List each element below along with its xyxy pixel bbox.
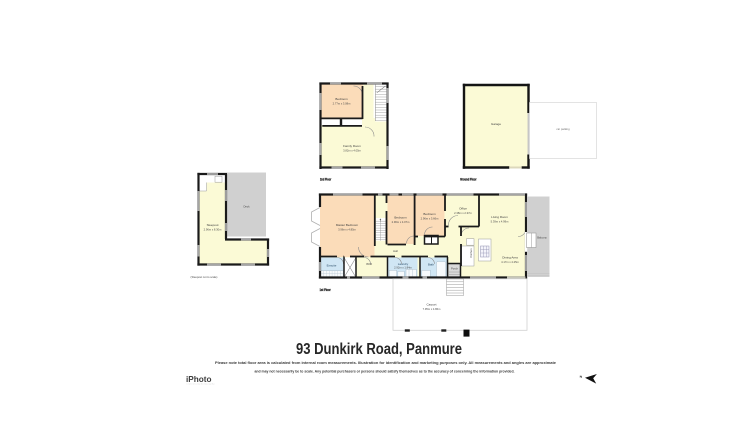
svg-text:2.96m x 3.66m: 2.96m x 3.66m	[421, 217, 440, 221]
svg-text:car parking: car parking	[556, 127, 570, 131]
svg-text:Hall: Hall	[393, 249, 398, 253]
svg-text:Carport: Carport	[426, 303, 436, 307]
svg-text:Bedroom: Bedroom	[423, 212, 436, 216]
svg-text:Bedroom: Bedroom	[335, 97, 348, 101]
svg-text:Dining Area: Dining Area	[502, 256, 518, 260]
svg-text:2.92m x 1.84m: 2.92m x 1.84m	[394, 266, 413, 270]
svg-text:Office: Office	[459, 207, 467, 211]
svg-text:2nd Floor: 2nd Floor	[320, 178, 332, 182]
svg-text:Ensuite: Ensuite	[327, 264, 337, 268]
svg-text:3.82m x 4.05m: 3.82m x 4.05m	[343, 149, 362, 153]
svg-text:Laundry: Laundry	[398, 262, 409, 266]
svg-text:Porch: Porch	[451, 267, 459, 271]
svg-text:Sleepout: Sleepout	[207, 223, 219, 227]
svg-text:1st Floor: 1st Floor	[320, 288, 332, 292]
svg-text:and may not necessarily be to: and may not necessarily be to scale. Any…	[255, 370, 515, 374]
svg-text:Please note total floor area i: Please note total floor area is calculat…	[215, 361, 556, 365]
svg-text:3.96m x 4.85m: 3.96m x 4.85m	[338, 228, 357, 232]
svg-text:Deck: Deck	[243, 205, 250, 209]
svg-text:2.38m x 2.37m: 2.38m x 2.37m	[454, 211, 473, 215]
svg-text:Ground Floor: Ground Floor	[460, 178, 477, 182]
svg-text:Master Bedroom: Master Bedroom	[336, 223, 359, 227]
svg-text:Bath: Bath	[428, 263, 434, 267]
svg-text:2.96m x 4.07m: 2.96m x 4.07m	[392, 220, 411, 224]
svg-text:Kitchen: Kitchen	[469, 248, 473, 257]
svg-text:Garage: Garage	[491, 122, 501, 126]
svg-text:7.95m x 4.86m: 7.95m x 4.86m	[423, 307, 442, 311]
svg-text:(Sleepout not to scale): (Sleepout not to scale)	[191, 275, 218, 279]
svg-text:2.96m x 8.30m: 2.96m x 8.30m	[204, 228, 223, 232]
svg-text:Family Room: Family Room	[343, 144, 361, 148]
svg-text:2.77m x 3.08m: 2.77m x 3.08m	[333, 102, 352, 106]
svg-text:4.17m x 4.25m: 4.17m x 4.25m	[501, 260, 520, 264]
svg-text:WIR: WIR	[366, 262, 373, 266]
svg-text:r e a l e s t a t e p h o: r e a l e s t a t e p h o t o g r a p h …	[187, 383, 215, 386]
svg-text:Living Room: Living Room	[491, 215, 508, 219]
svg-text:Bedroom: Bedroom	[394, 216, 407, 220]
svg-text:5.39m x 4.99m: 5.39m x 4.99m	[491, 220, 510, 224]
svg-text:Balcony: Balcony	[537, 236, 547, 240]
svg-text:93 Dunkirk Road, Panmure: 93 Dunkirk Road, Panmure	[296, 341, 462, 358]
